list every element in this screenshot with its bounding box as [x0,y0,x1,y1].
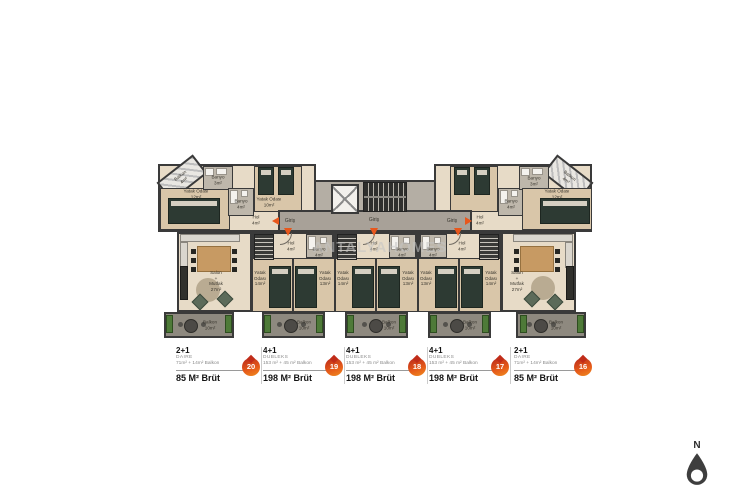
planter [430,315,437,333]
room-label: Yatak Odası 12m² [545,189,570,200]
room-label: Banyo 4m² [234,199,247,210]
planter [520,315,527,333]
divider [176,370,250,371]
chair [555,267,560,272]
bed [269,266,291,308]
room-label: Giriş [285,218,295,224]
room-label: Yatak Odası 10m² [257,197,282,208]
bed [540,198,590,224]
btable [534,319,548,333]
north-label: N [680,440,714,451]
room-label: Giriş [447,218,457,224]
chair [555,258,560,263]
unit-badge-17[interactable]: 17 [491,358,509,376]
planter [482,315,489,333]
unit-badge-20[interactable]: 20 [242,358,260,376]
north-compass: N [680,440,714,493]
bed [454,167,470,195]
bed [278,167,294,195]
room-label: Banyo 3m² [527,176,540,187]
entry-arrow-right [465,217,472,225]
fix [532,168,543,175]
room-label: Hol 4m² [252,215,260,226]
chair [232,249,237,254]
unit-type: 2+1 [176,346,190,355]
floorplan-page: Balkon 4m²Banyo 3m²Yatak Odası 12m²Banyo… [0,0,750,500]
bed [474,167,490,195]
counter [565,242,573,268]
room-label: Yatak Odası 13m² [319,270,331,287]
label-separator [344,347,345,384]
planter [577,315,584,333]
chair [191,267,196,272]
entry-arrow-down [454,228,462,236]
sofa [180,266,188,300]
entry-arrow-down [284,228,292,236]
dtable [197,246,231,272]
label-separator [261,347,262,384]
sofa [566,266,574,300]
stairsv [254,234,274,260]
room-label: Yatak Odası 12m² [184,189,209,200]
planter [399,315,406,333]
chair [514,249,519,254]
room-label: Banyo 4m² [504,199,517,210]
unit-badge-18[interactable]: 18 [408,358,426,376]
unit-type: 2+1 [514,346,528,355]
planter [264,315,271,333]
planter [166,315,173,333]
unit-brut: 198 M² Brüt [263,373,312,383]
room-label: Giriş [369,217,379,223]
room-label: Yatak Odası 13m² [420,270,432,287]
room-label: Yatak Odası 14m² [485,270,497,287]
counter [513,234,573,242]
room-label: Yatak Odası 14m² [254,270,266,287]
chair [191,258,196,263]
bed [378,266,400,308]
btable [450,319,464,333]
room-label: Salon + Mutfak 27m² [209,270,223,292]
room-label: Banyo 3m² [211,175,224,186]
dot [443,322,448,327]
dtable [520,246,554,272]
entry-arrow-down [370,228,378,236]
room-label: Salon + Mutfak 27m² [510,270,524,292]
room-label: Balkon 10m² [382,320,396,331]
btable [284,319,298,333]
label-separator [510,347,511,384]
elev [331,184,359,214]
room-label: Balkon 10m² [463,320,477,331]
counter [180,242,188,268]
unit-brut: 85 M² Brüt [514,373,558,383]
bed [461,266,483,308]
stairsv [479,234,499,260]
chair [191,249,196,254]
chair [232,258,237,263]
unit-detail: 153 m² + 45 m² Balkon [346,361,395,367]
dot [178,322,183,327]
label-separator [427,347,428,384]
unit-badge-19[interactable]: 19 [325,358,343,376]
unit-type: 4+1 [429,346,443,355]
stairsh [363,182,407,212]
unit-brut: 198 M² Brüt [346,373,395,383]
unit-detail: 71m² + 14m² Balkon [176,361,219,367]
north-pin-icon [683,452,711,488]
room-label: Yatak Odası 14m² [337,270,349,287]
room-label: Yatak Odası 13m² [402,270,414,287]
room-label: Balkon 10m² [297,320,311,331]
bed [258,167,274,195]
unit-brut: 198 M² Brüt [429,373,478,383]
unit-brut: 85 M² Brüt [176,373,220,383]
watermark: ANTALYAHOMES [292,239,468,256]
unit-type: 4+1 [346,346,360,355]
entry-arrow-left [272,217,279,225]
bed [435,266,457,308]
unit-detail: 153 m² + 45 m² Balkon [429,361,478,367]
planter [347,315,354,333]
unit-detail: 71m² + 14m² Balkon [514,361,557,367]
dot [527,322,532,327]
room-label: Hol 4m² [476,215,484,226]
unit-badge-16[interactable]: 16 [574,358,592,376]
room-label: Balkon 10m² [203,320,217,331]
unit-detail: 153 m² + 45 m² Balkon [263,361,312,367]
fix [511,190,518,197]
room-label: Balkon 10m² [549,320,563,331]
btable [369,319,383,333]
bed [168,198,220,224]
balcony-unit-20 [164,312,234,338]
planter [316,315,323,333]
chair [555,249,560,254]
chair [514,258,519,263]
chair [232,267,237,272]
bed [295,266,317,308]
unit-type: 4+1 [263,346,277,355]
bed [352,266,374,308]
btable [184,319,198,333]
dot [277,322,282,327]
fix [241,190,248,197]
counter [180,234,240,242]
dot [362,322,367,327]
planter [225,315,232,333]
